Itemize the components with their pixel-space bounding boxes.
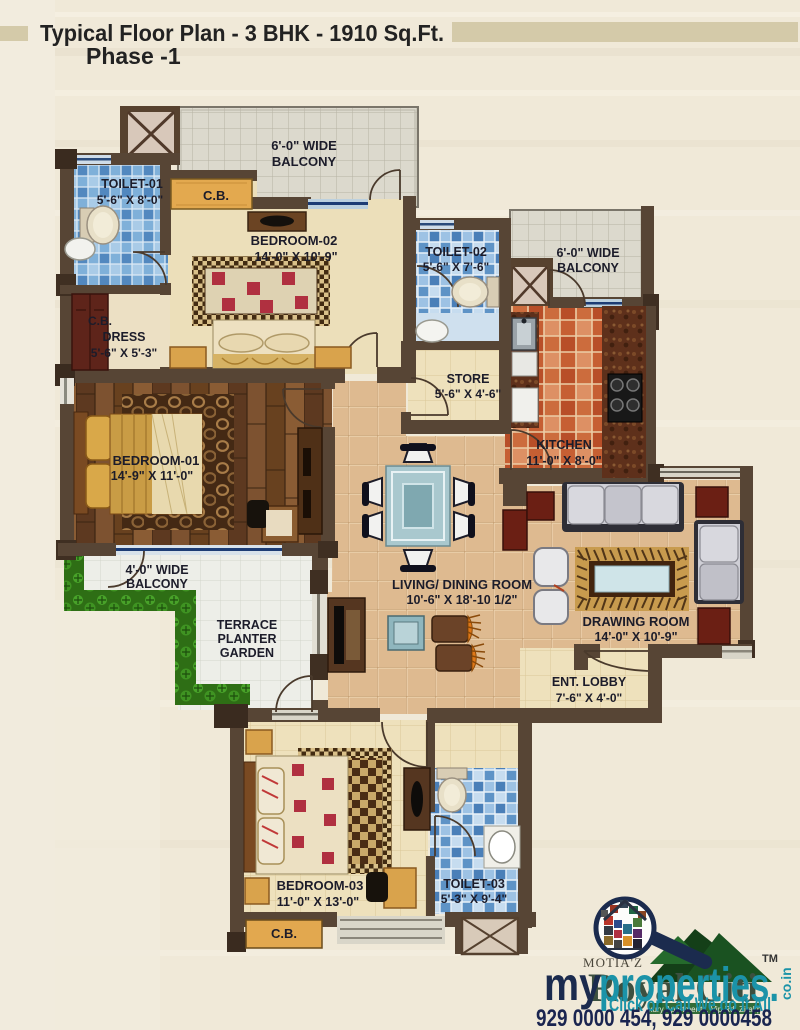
svg-text:DRAWING ROOM: DRAWING ROOM xyxy=(583,614,690,629)
svg-text:5'-6" X 8'-0": 5'-6" X 8'-0" xyxy=(97,193,163,207)
svg-text:929 0000 454, 929 0000458: 929 0000 454, 929 0000458 xyxy=(536,1005,772,1030)
svg-text:6'-0" WIDE: 6'-0" WIDE xyxy=(271,138,337,153)
svg-text:BALCONY: BALCONY xyxy=(126,577,188,591)
svg-text:TERRACE: TERRACE xyxy=(217,618,277,632)
svg-text:5'-6" X 5'-3": 5'-6" X 5'-3" xyxy=(91,346,157,360)
svg-text:TOILET-01: TOILET-01 xyxy=(101,177,163,191)
svg-text:STORE: STORE xyxy=(447,372,490,386)
svg-text:C.B.: C.B. xyxy=(203,188,229,203)
svg-text:BEDROOM-01: BEDROOM-01 xyxy=(113,453,200,468)
svg-text:5'-6" X 7'-6": 5'-6" X 7'-6" xyxy=(423,260,489,274)
svg-text:C.B.: C.B. xyxy=(88,314,112,328)
svg-text:14'-0" X 10'-9": 14'-0" X 10'-9" xyxy=(254,250,337,264)
svg-text:TOILET-03: TOILET-03 xyxy=(443,877,505,891)
svg-text:7'-6" X 4'-0": 7'-6" X 4'-0" xyxy=(556,691,622,705)
svg-text:4'-0" WIDE: 4'-0" WIDE xyxy=(125,563,188,577)
svg-text:BALCONY: BALCONY xyxy=(557,261,619,275)
svg-text:BEDROOM-02: BEDROOM-02 xyxy=(251,233,338,248)
svg-text:DRESS: DRESS xyxy=(102,330,145,344)
svg-text:10'-6" X 18'-10 1/2": 10'-6" X 18'-10 1/2" xyxy=(407,593,518,607)
svg-text:PLANTER: PLANTER xyxy=(217,632,276,646)
svg-text:TM: TM xyxy=(762,953,778,965)
svg-text:Phase -1: Phase -1 xyxy=(86,43,181,69)
svg-text:5'-6" X 4'-6": 5'-6" X 4'-6" xyxy=(435,387,501,401)
svg-text:BALCONY: BALCONY xyxy=(272,154,337,169)
svg-text:14'-0" X 10'-9": 14'-0" X 10'-9" xyxy=(594,630,677,644)
svg-text:5'-3" X 9'-4": 5'-3" X 9'-4" xyxy=(441,892,507,906)
svg-text:GARDEN: GARDEN xyxy=(220,646,274,660)
svg-text:6'-0" WIDE: 6'-0" WIDE xyxy=(556,246,619,260)
svg-text:C.B.: C.B. xyxy=(271,926,297,941)
svg-text:co.in: co.in xyxy=(778,967,794,1000)
svg-text:11'-0" X 8'-0": 11'-0" X 8'-0" xyxy=(526,454,602,468)
svg-text:KITCHEN: KITCHEN xyxy=(536,438,592,452)
svg-text:11'-0" X 13'-0": 11'-0" X 13'-0" xyxy=(277,895,360,909)
svg-text:TOILET-02: TOILET-02 xyxy=(425,245,487,259)
svg-text:LIVING/ DINING ROOM: LIVING/ DINING ROOM xyxy=(392,577,532,592)
svg-text:BEDROOM-03: BEDROOM-03 xyxy=(277,878,364,893)
svg-text:ENT. LOBBY: ENT. LOBBY xyxy=(552,675,627,689)
svg-text:14'-9" X 11'-0": 14'-9" X 11'-0" xyxy=(111,469,194,483)
svg-text:my: my xyxy=(544,958,601,1010)
